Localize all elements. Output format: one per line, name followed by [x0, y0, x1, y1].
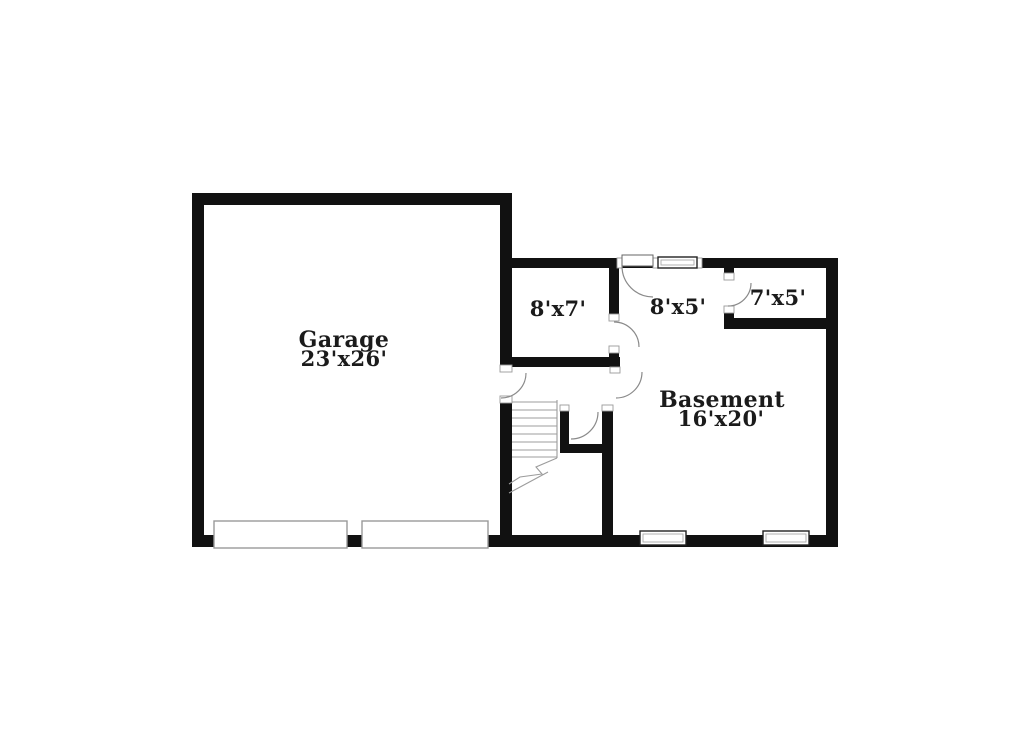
jamb-basement-door-bottom	[602, 405, 613, 411]
window-top	[658, 257, 697, 268]
jamb-garage-door-top	[500, 365, 512, 372]
basement-dims-label: 16'x20'	[678, 406, 765, 431]
jamb-7x5-door-bottom	[724, 306, 734, 313]
jamb-top-window-right	[697, 258, 702, 268]
wall-garage-top	[192, 193, 512, 205]
window-bottom-1	[640, 531, 686, 545]
jamb-8x7-door-bottom	[609, 346, 619, 353]
window-bottom-2	[763, 531, 809, 545]
wall-right-exterior	[826, 258, 838, 547]
jamb-top-door-left	[617, 258, 622, 268]
jamb-basement-door-top	[610, 367, 620, 373]
jamb-top-door-right	[653, 258, 658, 268]
garage-dims-label: 23'x26'	[301, 346, 388, 371]
wall-closet-bottom	[560, 444, 613, 453]
jamb-7x5-door-top	[724, 273, 734, 280]
wall-7x5-bottom	[724, 318, 838, 329]
floor-plan-image: Garage 23'x26' 8'x7' 8'x5' 7'x5' Basemen…	[0, 0, 1024, 744]
garage-door-2	[362, 521, 488, 548]
room-8x7-label: 8'x7'	[530, 296, 587, 321]
entry-door-leaf	[622, 255, 653, 266]
wall-garage-left	[192, 193, 204, 547]
wall-garage-right-lower	[500, 396, 512, 547]
wall-hall-basement-divider	[602, 405, 613, 535]
garage-door-1	[214, 521, 347, 548]
room-7x5-label: 7'x5'	[750, 285, 807, 310]
room-8x5-label: 8'x5'	[650, 294, 707, 319]
jamb-8x7-door-top	[609, 314, 619, 321]
jamb-closet-door-left	[560, 405, 569, 411]
wall-garage-right-upper	[500, 193, 512, 372]
wall-landing-top	[500, 357, 620, 367]
